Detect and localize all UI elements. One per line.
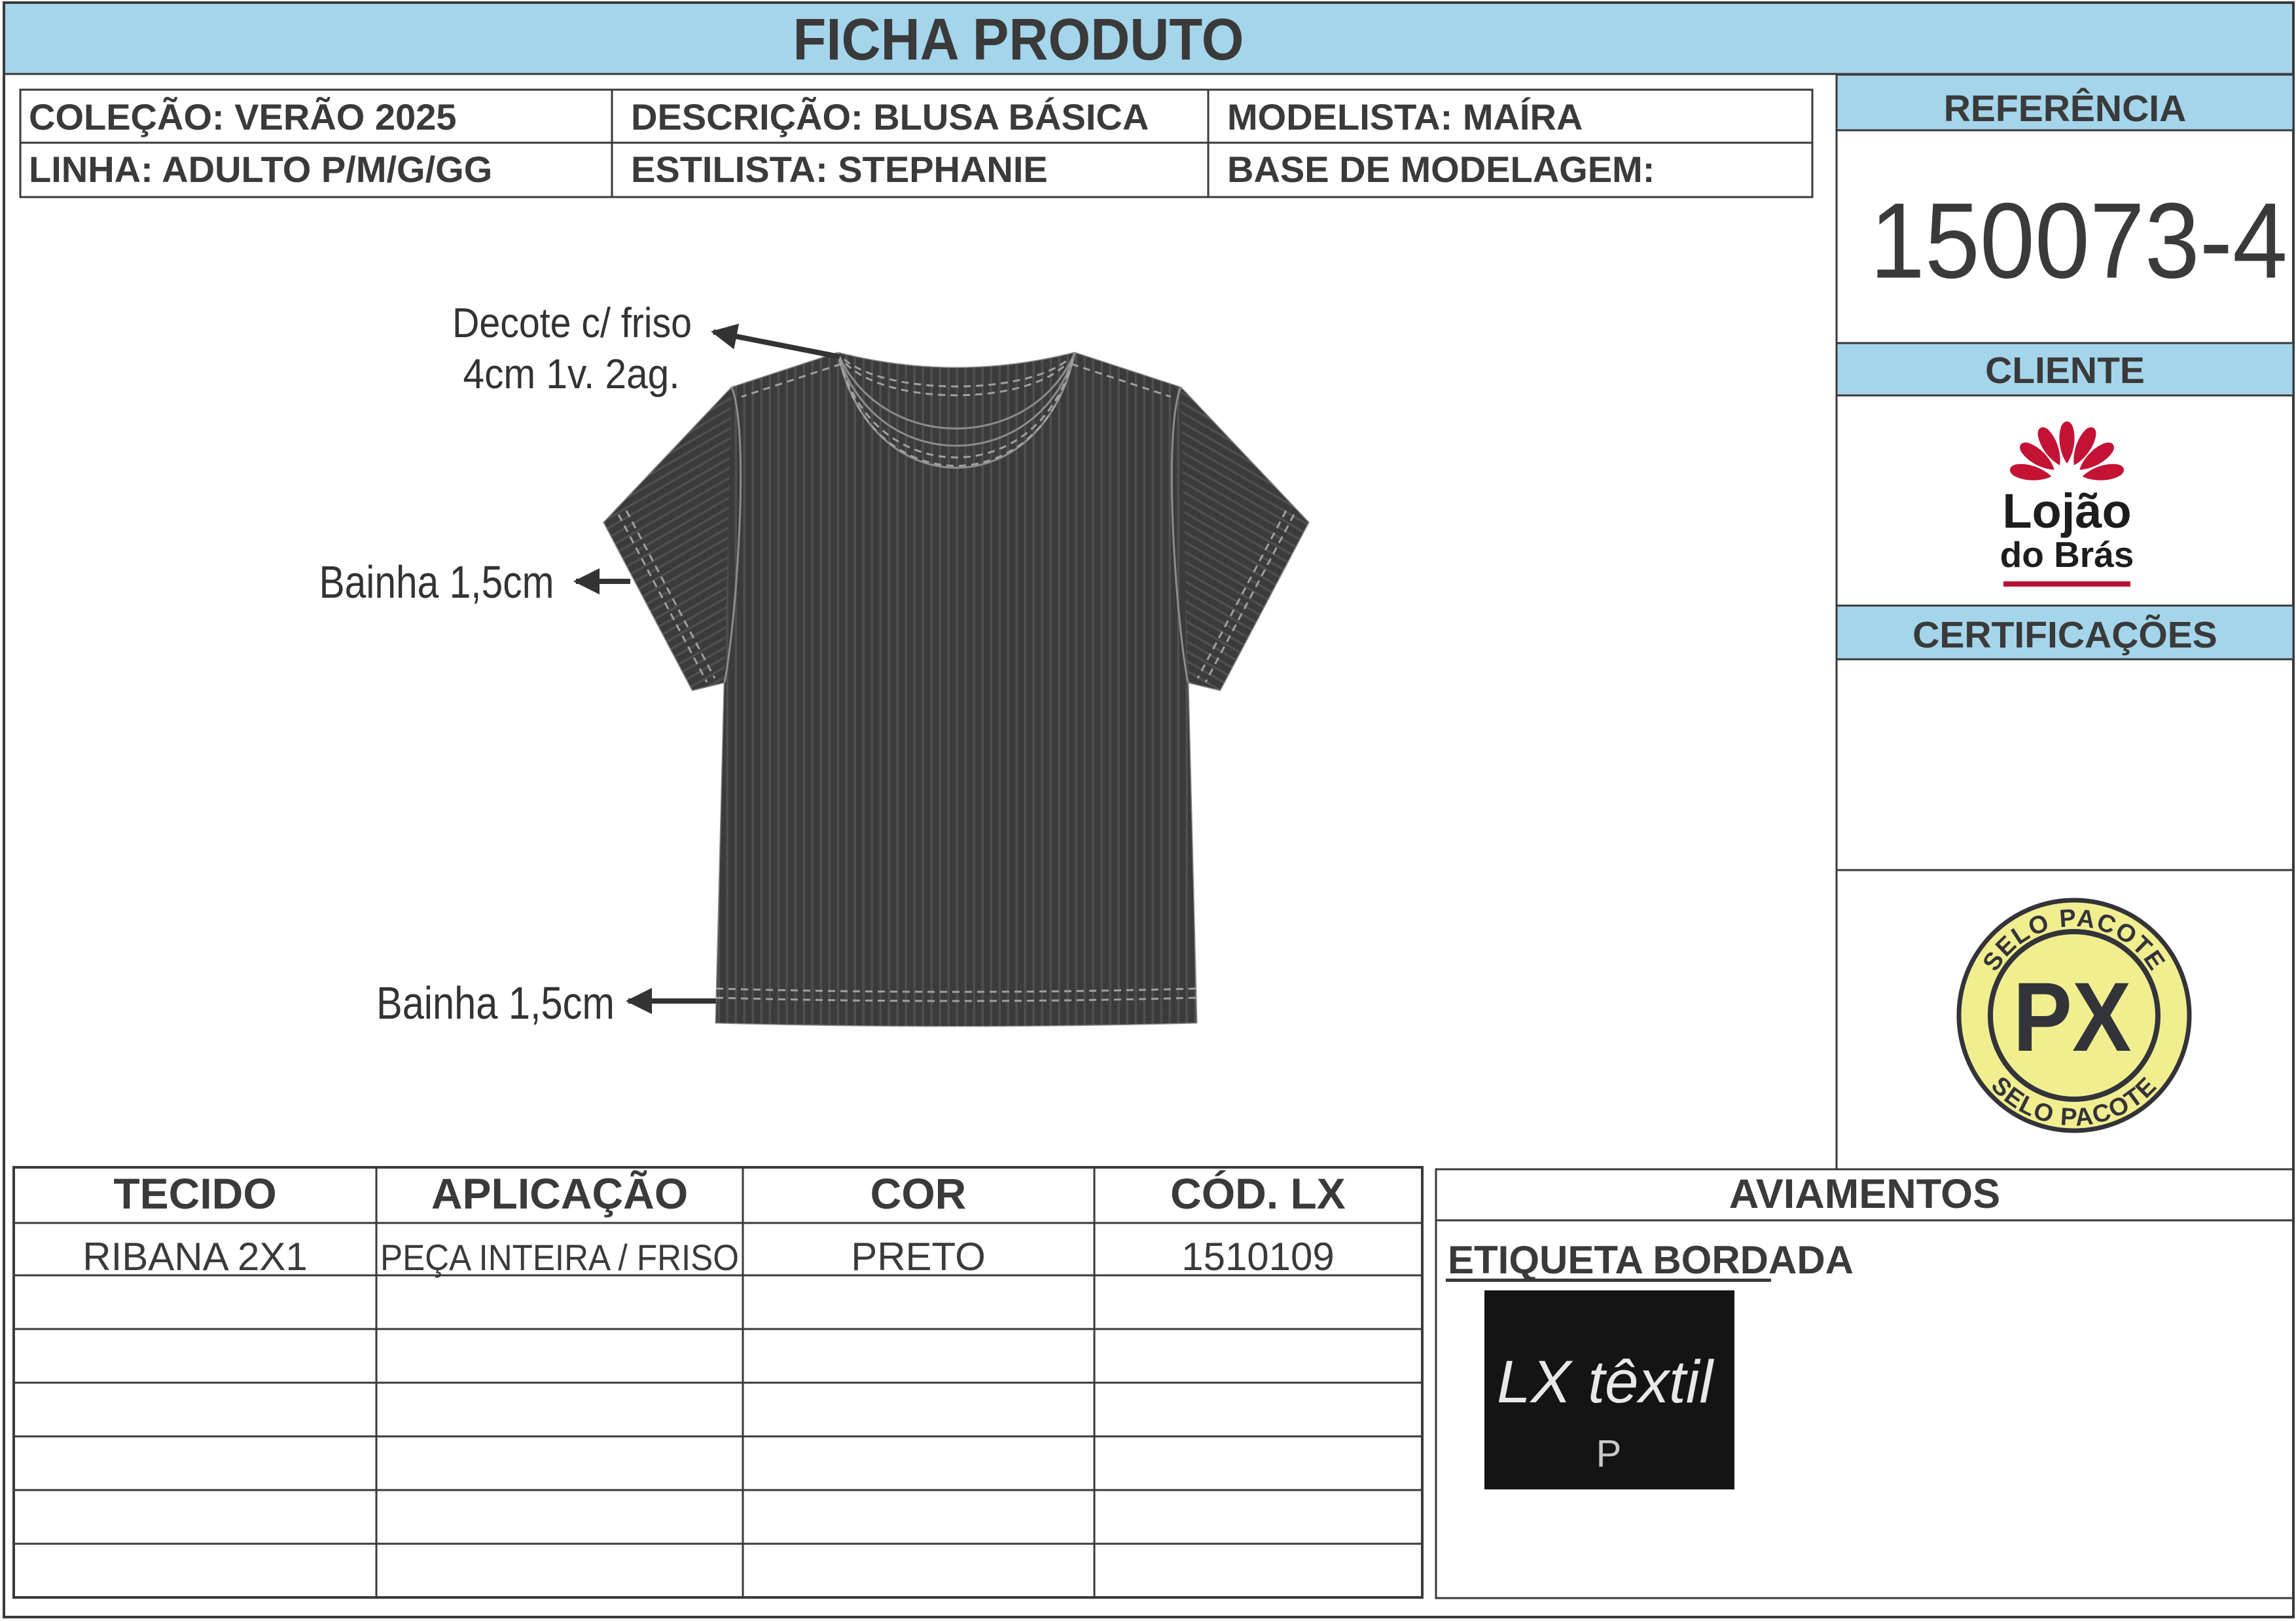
svg-text:ESTILISTA: STEPHANIE: ESTILISTA: STEPHANIE xyxy=(631,149,1048,190)
svg-text:Bainha 1,5cm: Bainha 1,5cm xyxy=(319,556,554,608)
svg-text:LINHA: ADULTO P/M/G/GG: LINHA: ADULTO P/M/G/GG xyxy=(29,149,492,190)
svg-text:P: P xyxy=(1596,1432,1622,1475)
svg-text:REFERÊNCIA: REFERÊNCIA xyxy=(1944,87,2187,130)
svg-text:DESCRIÇÃO: BLUSA BÁSICA: DESCRIÇÃO: BLUSA BÁSICA xyxy=(631,96,1149,137)
svg-text:AVIAMENTOS: AVIAMENTOS xyxy=(1729,1171,2000,1217)
svg-text:APLICAÇÃO: APLICAÇÃO xyxy=(431,1169,688,1218)
svg-text:BASE DE MODELAGEM:: BASE DE MODELAGEM: xyxy=(1227,149,1655,190)
svg-text:PEÇA INTEIRA / FRISO: PEÇA INTEIRA / FRISO xyxy=(380,1237,739,1278)
svg-text:do Brás: do Brás xyxy=(2000,534,2134,575)
svg-text:COR: COR xyxy=(870,1169,967,1218)
svg-text:MODELISTA: MAÍRA: MODELISTA: MAÍRA xyxy=(1227,96,1583,137)
svg-text:FICHA PRODUTO: FICHA PRODUTO xyxy=(793,7,1244,73)
svg-text:Decote c/ friso: Decote c/ friso xyxy=(452,299,692,346)
svg-text:Lojão: Lojão xyxy=(2002,484,2131,538)
svg-text:ETIQUETA BORDADA: ETIQUETA BORDADA xyxy=(1448,1238,1854,1282)
svg-text:CERTIFICAÇÕES: CERTIFICAÇÕES xyxy=(1912,614,2217,656)
svg-text:4cm 1v. 2ag.: 4cm 1v. 2ag. xyxy=(463,350,680,397)
svg-text:LX têxtil: LX têxtil xyxy=(1497,1349,1715,1415)
svg-text:PX: PX xyxy=(2013,962,2132,1072)
svg-text:Bainha 1,5cm: Bainha 1,5cm xyxy=(376,977,615,1029)
svg-text:PRETO: PRETO xyxy=(851,1235,986,1279)
svg-text:TECIDO: TECIDO xyxy=(113,1169,276,1218)
svg-text:1510109: 1510109 xyxy=(1181,1235,1335,1279)
svg-text:150073-4: 150073-4 xyxy=(1870,181,2287,301)
svg-text:CLIENTE: CLIENTE xyxy=(1985,350,2145,392)
svg-text:RIBANA 2X1: RIBANA 2X1 xyxy=(82,1235,308,1279)
svg-text:COLEÇÃO: VERÃO 2025: COLEÇÃO: VERÃO 2025 xyxy=(29,96,457,137)
svg-text:CÓD. LX: CÓD. LX xyxy=(1170,1169,1346,1218)
